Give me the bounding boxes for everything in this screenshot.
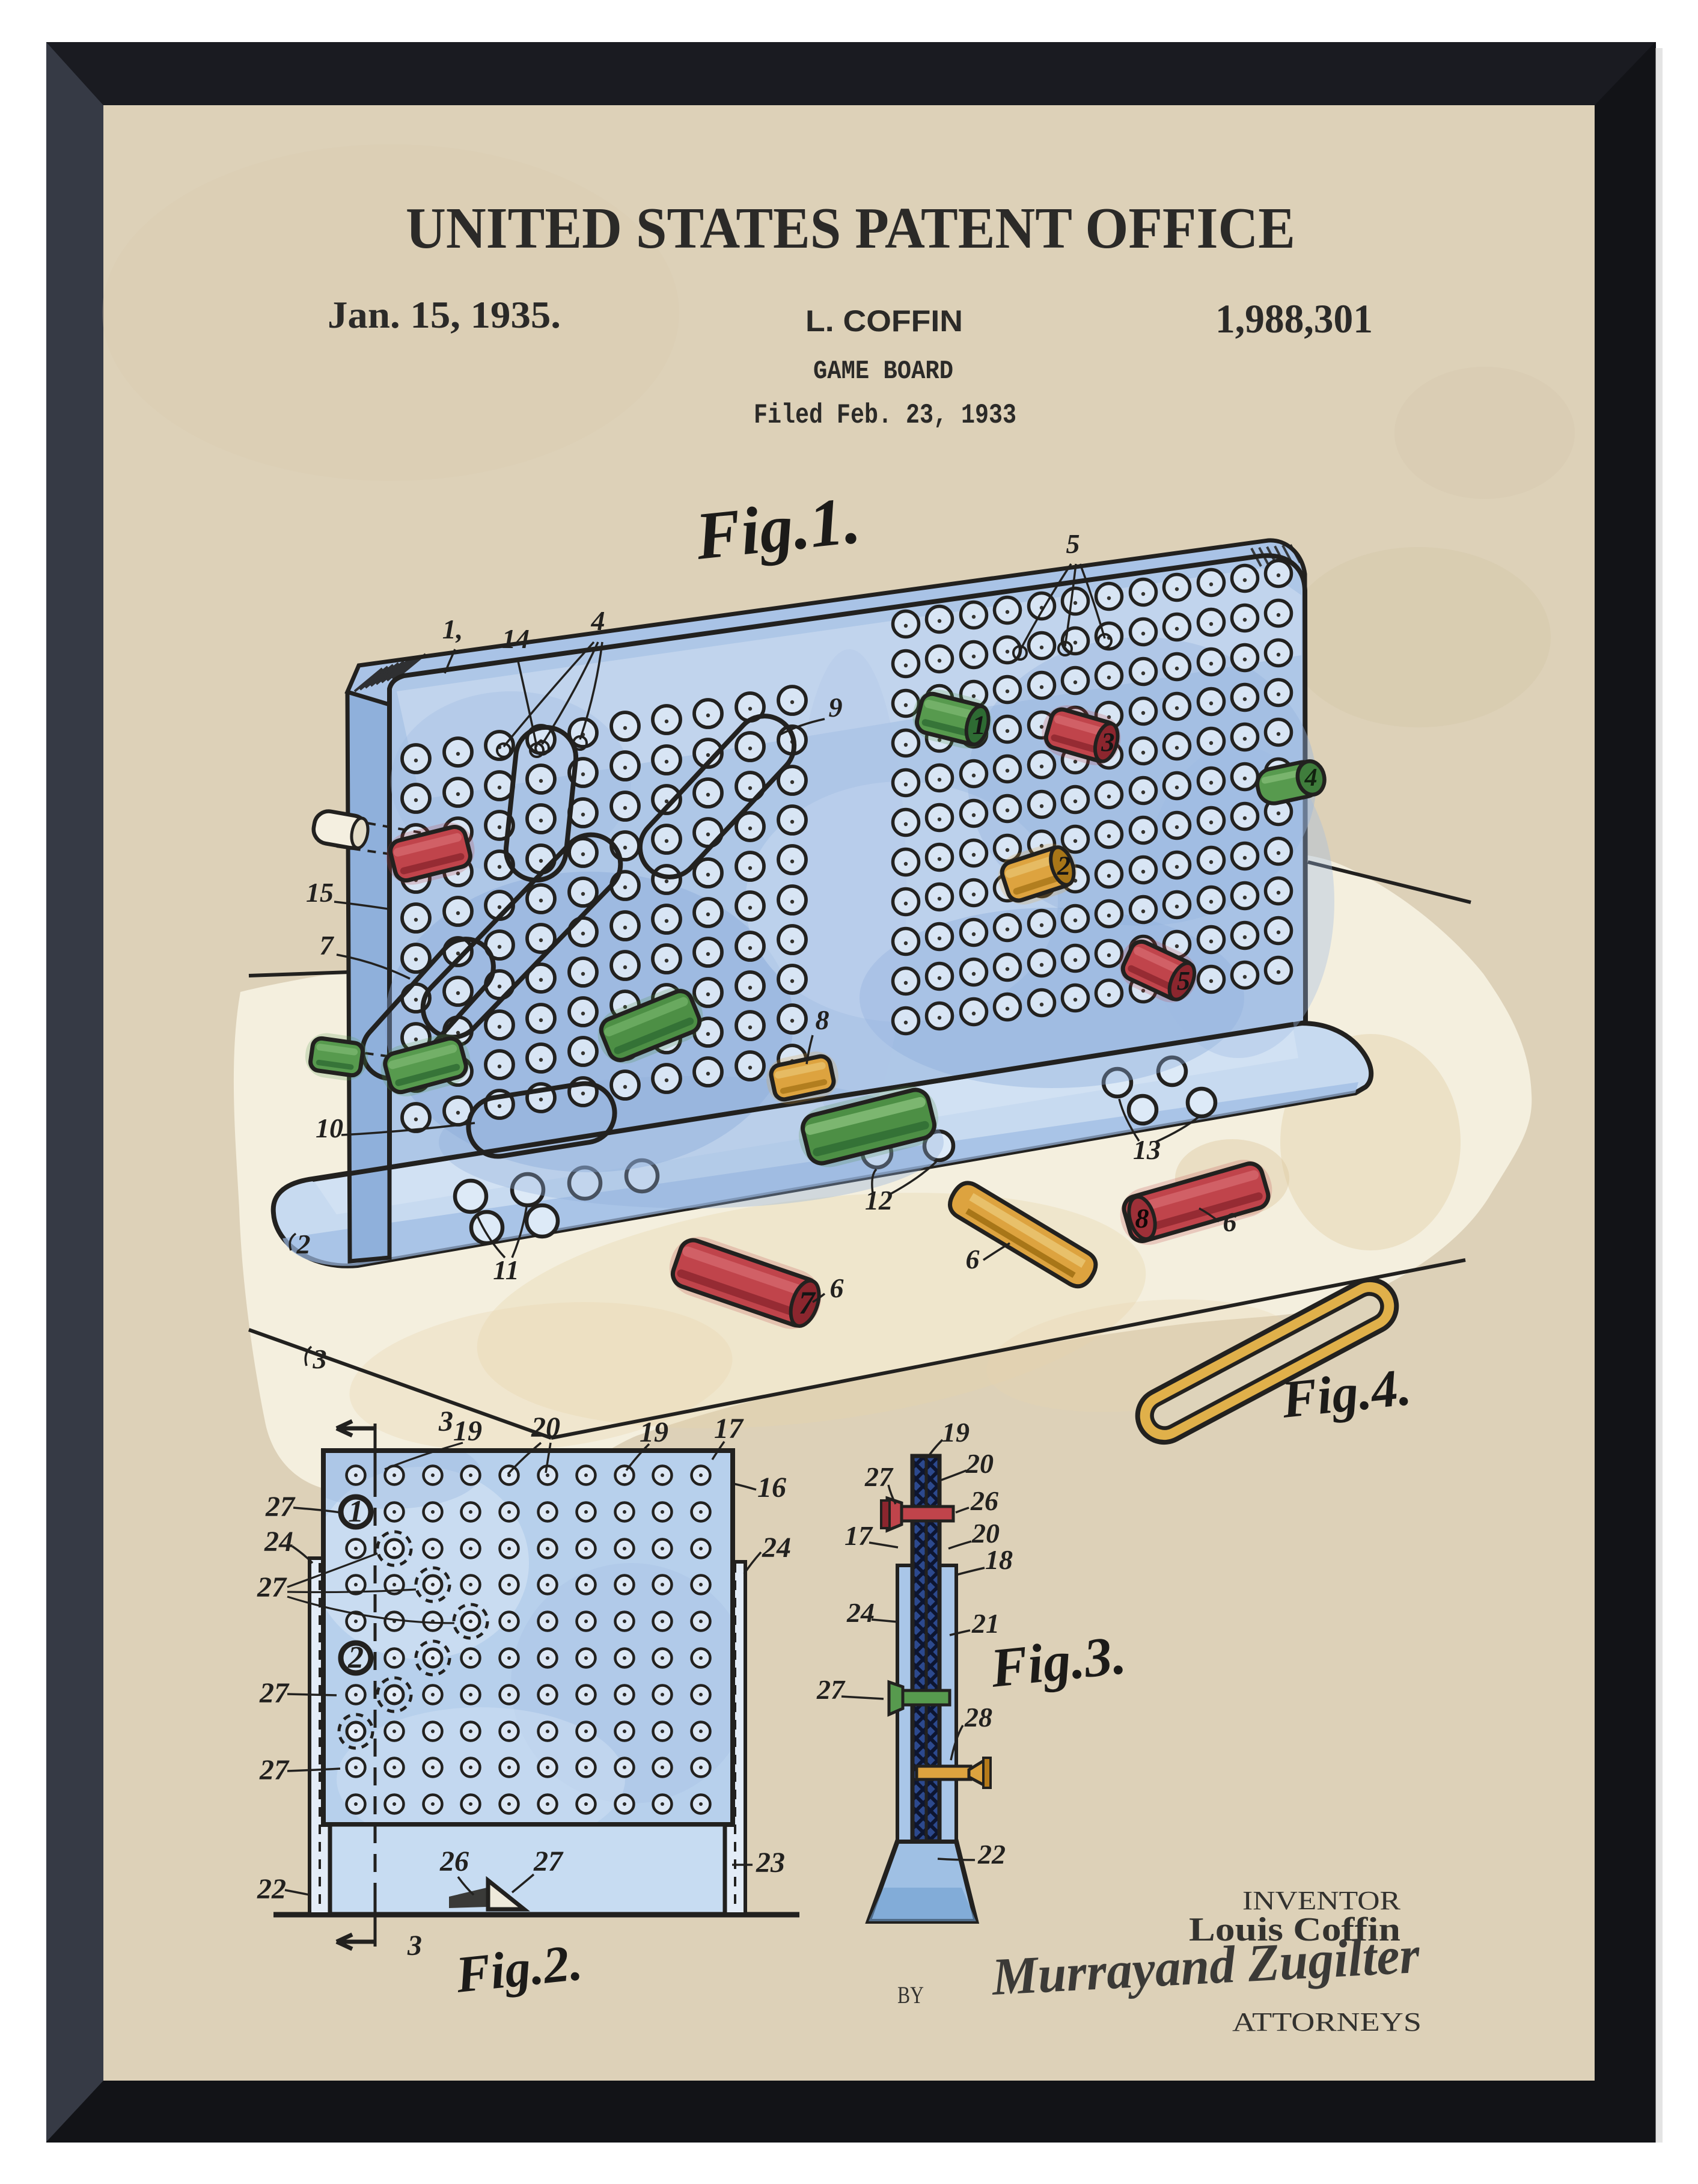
- svg-text:3: 3: [1101, 727, 1114, 757]
- svg-text:24: 24: [264, 1526, 293, 1558]
- svg-text:Filed Feb. 23, 1933: Filed Feb. 23, 1933: [754, 400, 1016, 431]
- svg-text:2: 2: [347, 1641, 364, 1675]
- svg-text:27: 27: [864, 1461, 894, 1492]
- svg-text:21: 21: [971, 1608, 1000, 1639]
- svg-text:20: 20: [531, 1412, 560, 1443]
- svg-text:1,988,301: 1,988,301: [1215, 296, 1373, 341]
- svg-text:13: 13: [1133, 1134, 1161, 1165]
- svg-text:2: 2: [1057, 850, 1070, 880]
- svg-text:1,: 1,: [442, 614, 463, 644]
- svg-text:1: 1: [348, 1494, 364, 1529]
- svg-text:5: 5: [1066, 528, 1080, 559]
- svg-text:6: 6: [966, 1244, 980, 1274]
- svg-text:20: 20: [965, 1448, 994, 1479]
- svg-text:19: 19: [942, 1417, 970, 1448]
- svg-text:27: 27: [533, 1846, 564, 1877]
- svg-text:19: 19: [640, 1416, 668, 1448]
- svg-text:2: 2: [296, 1229, 311, 1259]
- svg-text:8: 8: [1135, 1203, 1149, 1234]
- svg-text:23: 23: [756, 1847, 785, 1879]
- svg-text:22: 22: [977, 1839, 1006, 1870]
- svg-text:27: 27: [257, 1571, 287, 1603]
- svg-text:18: 18: [985, 1544, 1013, 1575]
- svg-text:26: 26: [439, 1846, 469, 1877]
- svg-text:17: 17: [844, 1520, 873, 1551]
- svg-text:10: 10: [316, 1113, 343, 1143]
- svg-text:26: 26: [970, 1485, 998, 1516]
- svg-text:27: 27: [259, 1754, 290, 1786]
- svg-text:ATTORNEYS: ATTORNEYS: [1232, 2007, 1422, 2037]
- svg-text:14: 14: [502, 623, 530, 654]
- svg-text:3: 3: [438, 1406, 453, 1437]
- svg-text:27: 27: [259, 1677, 290, 1709]
- svg-text:UNITED STATES PATENT OFFICE: UNITED STATES PATENT OFFICE: [406, 196, 1295, 260]
- svg-text:19: 19: [453, 1415, 482, 1447]
- svg-text:7: 7: [320, 930, 335, 961]
- svg-text:3: 3: [313, 1344, 327, 1374]
- svg-text:GAME BOARD: GAME BOARD: [813, 356, 953, 387]
- svg-text:15: 15: [306, 877, 334, 908]
- svg-text:6: 6: [830, 1273, 844, 1303]
- svg-text:16: 16: [757, 1472, 786, 1503]
- svg-text:24: 24: [846, 1597, 875, 1628]
- svg-text:1: 1: [973, 709, 986, 739]
- svg-text:27: 27: [816, 1674, 846, 1705]
- svg-text:28: 28: [964, 1702, 992, 1733]
- svg-text:3: 3: [407, 1930, 422, 1962]
- svg-text:27: 27: [265, 1491, 296, 1523]
- svg-text:4: 4: [1304, 764, 1318, 792]
- svg-text:5: 5: [1177, 965, 1190, 996]
- svg-text:22: 22: [257, 1873, 286, 1905]
- svg-text:12: 12: [865, 1185, 893, 1216]
- svg-text:L. COFFIN: L. COFFIN: [805, 304, 963, 338]
- svg-text:Jan. 15, 1935.: Jan. 15, 1935.: [328, 293, 561, 336]
- svg-text:9: 9: [829, 692, 843, 723]
- svg-text:11: 11: [493, 1255, 519, 1285]
- svg-text:4: 4: [591, 605, 605, 636]
- svg-text:24: 24: [762, 1532, 791, 1564]
- svg-text:6: 6: [1223, 1207, 1237, 1237]
- svg-text:BY: BY: [897, 1981, 924, 2008]
- svg-text:8: 8: [816, 1005, 829, 1035]
- svg-text:17: 17: [714, 1413, 744, 1445]
